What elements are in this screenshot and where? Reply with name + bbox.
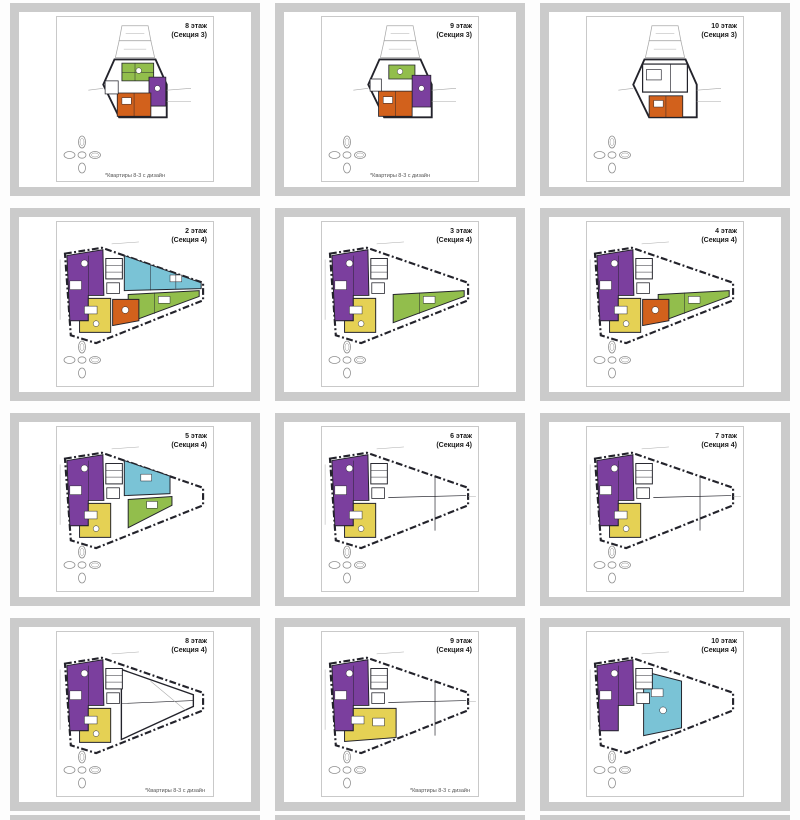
floorplan-card[interactable]: 7 этаж(Секция 4) bbox=[540, 413, 790, 606]
section-label: (Секция 4) bbox=[701, 646, 737, 655]
partial-card-frame bbox=[10, 815, 260, 820]
plan-title: 7 этаж(Секция 4) bbox=[701, 432, 737, 450]
plan-title: 8 этаж(Секция 3) bbox=[171, 22, 207, 40]
floorplan-card[interactable]: 8 этаж(Секция 3)*Квартиры 8-3 с дизайн bbox=[10, 3, 260, 196]
section-label: (Секция 4) bbox=[171, 441, 207, 450]
drawing-sheet: 10 этаж(Секция 4) bbox=[586, 631, 744, 797]
floor-label: 9 этаж bbox=[436, 637, 472, 646]
section-label: (Секция 4) bbox=[171, 236, 207, 245]
plan-caption: *Квартиры 8-3 с дизайн bbox=[322, 173, 478, 179]
section-label: (Секция 4) bbox=[436, 646, 472, 655]
drawing-sheet: 9 этаж(Секция 3)*Квартиры 8-3 с дизайн bbox=[321, 16, 479, 182]
floor-label: 2 этаж bbox=[171, 227, 207, 236]
plan-title: 6 этаж(Секция 4) bbox=[436, 432, 472, 450]
floorplan-card[interactable]: 3 этаж(Секция 4) bbox=[275, 208, 525, 401]
floorplan-card[interactable]: 10 этаж(Секция 4) bbox=[540, 618, 790, 811]
plan-title: 10 этаж(Секция 4) bbox=[701, 637, 737, 655]
site-orientation-key bbox=[328, 135, 372, 175]
floor-plan-drawing bbox=[587, 240, 743, 347]
floor-plan-drawing bbox=[57, 240, 213, 347]
drawing-sheet: 2 этаж(Секция 4) bbox=[56, 221, 214, 387]
floor-label: 5 этаж bbox=[171, 432, 207, 441]
floor-plan-drawing bbox=[587, 650, 743, 757]
site-orientation-key bbox=[593, 135, 637, 175]
plan-title: 9 этаж(Секция 4) bbox=[436, 637, 472, 655]
drawing-sheet: 6 этаж(Секция 4) bbox=[321, 426, 479, 592]
floorplan-card[interactable]: 10 этаж(Секция 3) bbox=[540, 3, 790, 196]
floor-label: 9 этаж bbox=[436, 22, 472, 31]
section-label: (Секция 4) bbox=[436, 236, 472, 245]
plan-title: 3 этаж(Секция 4) bbox=[436, 227, 472, 245]
partial-card-frame bbox=[540, 815, 790, 820]
section-label: (Секция 4) bbox=[436, 441, 472, 450]
drawing-sheet: 5 этаж(Секция 4) bbox=[56, 426, 214, 592]
section-label: (Секция 3) bbox=[701, 31, 737, 40]
drawing-sheet: 9 этаж(Секция 4)*Квартиры 8-3 с дизайн bbox=[321, 631, 479, 797]
floor-plan-drawing bbox=[322, 240, 478, 347]
floor-plan-drawing bbox=[322, 650, 478, 757]
floor-label: 10 этаж bbox=[701, 22, 737, 31]
plan-caption: *Квартиры 8-3 с дизайн bbox=[410, 788, 470, 794]
plan-title: 8 этаж(Секция 4) bbox=[171, 637, 207, 655]
drawing-sheet: 8 этаж(Секция 4)*Квартиры 8-3 с дизайн bbox=[56, 631, 214, 797]
drawing-sheet: 4 этаж(Секция 4) bbox=[586, 221, 744, 387]
section-label: (Секция 3) bbox=[171, 31, 207, 40]
plan-caption: *Квартиры 8-3 с дизайн bbox=[145, 788, 205, 794]
drawing-sheet: 10 этаж(Секция 3) bbox=[586, 16, 744, 182]
plan-title: 5 этаж(Секция 4) bbox=[171, 432, 207, 450]
partial-card-frame bbox=[275, 815, 525, 820]
site-orientation-key bbox=[63, 340, 107, 380]
site-orientation-key bbox=[593, 545, 637, 585]
site-orientation-key bbox=[328, 340, 372, 380]
floorplan-card[interactable]: 4 этаж(Секция 4) bbox=[540, 208, 790, 401]
site-orientation-key bbox=[328, 750, 372, 790]
floorplan-card[interactable]: 9 этаж(Секция 3)*Квартиры 8-3 с дизайн bbox=[275, 3, 525, 196]
floor-label: 8 этаж bbox=[171, 22, 207, 31]
thumbnail-grid: 8 этаж(Секция 3)*Квартиры 8-3 с дизайн9 … bbox=[10, 3, 790, 811]
section-label: (Секция 4) bbox=[701, 236, 737, 245]
floorplan-card[interactable]: 8 этаж(Секция 4)*Квартиры 8-3 с дизайн bbox=[10, 618, 260, 811]
floor-label: 7 этаж bbox=[701, 432, 737, 441]
drawing-sheet: 3 этаж(Секция 4) bbox=[321, 221, 479, 387]
plan-title: 10 этаж(Секция 3) bbox=[701, 22, 737, 40]
floorplan-card[interactable]: 2 этаж(Секция 4) bbox=[10, 208, 260, 401]
floor-plan-drawing bbox=[57, 445, 213, 552]
floor-label: 8 этаж bbox=[171, 637, 207, 646]
next-row-partial bbox=[10, 815, 790, 820]
plan-title: 2 этаж(Секция 4) bbox=[171, 227, 207, 245]
site-orientation-key bbox=[63, 545, 107, 585]
plan-title: 4 этаж(Секция 4) bbox=[701, 227, 737, 245]
floor-plan-drawing bbox=[57, 650, 213, 757]
section-label: (Секция 4) bbox=[171, 646, 207, 655]
floor-label: 4 этаж bbox=[701, 227, 737, 236]
floor-plan-drawing bbox=[587, 445, 743, 552]
section-label: (Секция 4) bbox=[701, 441, 737, 450]
site-orientation-key bbox=[63, 750, 107, 790]
section-label: (Секция 3) bbox=[436, 31, 472, 40]
floor-plan-drawing bbox=[322, 445, 478, 552]
floorplan-card[interactable]: 5 этаж(Секция 4) bbox=[10, 413, 260, 606]
plan-title: 9 этаж(Секция 3) bbox=[436, 22, 472, 40]
floorplan-sheet-board: 8 этаж(Секция 3)*Квартиры 8-3 с дизайн9 … bbox=[0, 0, 800, 820]
site-orientation-key bbox=[593, 750, 637, 790]
site-orientation-key bbox=[328, 545, 372, 585]
drawing-sheet: 7 этаж(Секция 4) bbox=[586, 426, 744, 592]
site-orientation-key bbox=[63, 135, 107, 175]
drawing-sheet: 8 этаж(Секция 3)*Квартиры 8-3 с дизайн bbox=[56, 16, 214, 182]
floor-label: 3 этаж bbox=[436, 227, 472, 236]
floorplan-card[interactable]: 6 этаж(Секция 4) bbox=[275, 413, 525, 606]
site-orientation-key bbox=[593, 340, 637, 380]
plan-caption: *Квартиры 8-3 с дизайн bbox=[57, 173, 213, 179]
floor-label: 10 этаж bbox=[701, 637, 737, 646]
floorplan-card[interactable]: 9 этаж(Секция 4)*Квартиры 8-3 с дизайн bbox=[275, 618, 525, 811]
floor-label: 6 этаж bbox=[436, 432, 472, 441]
